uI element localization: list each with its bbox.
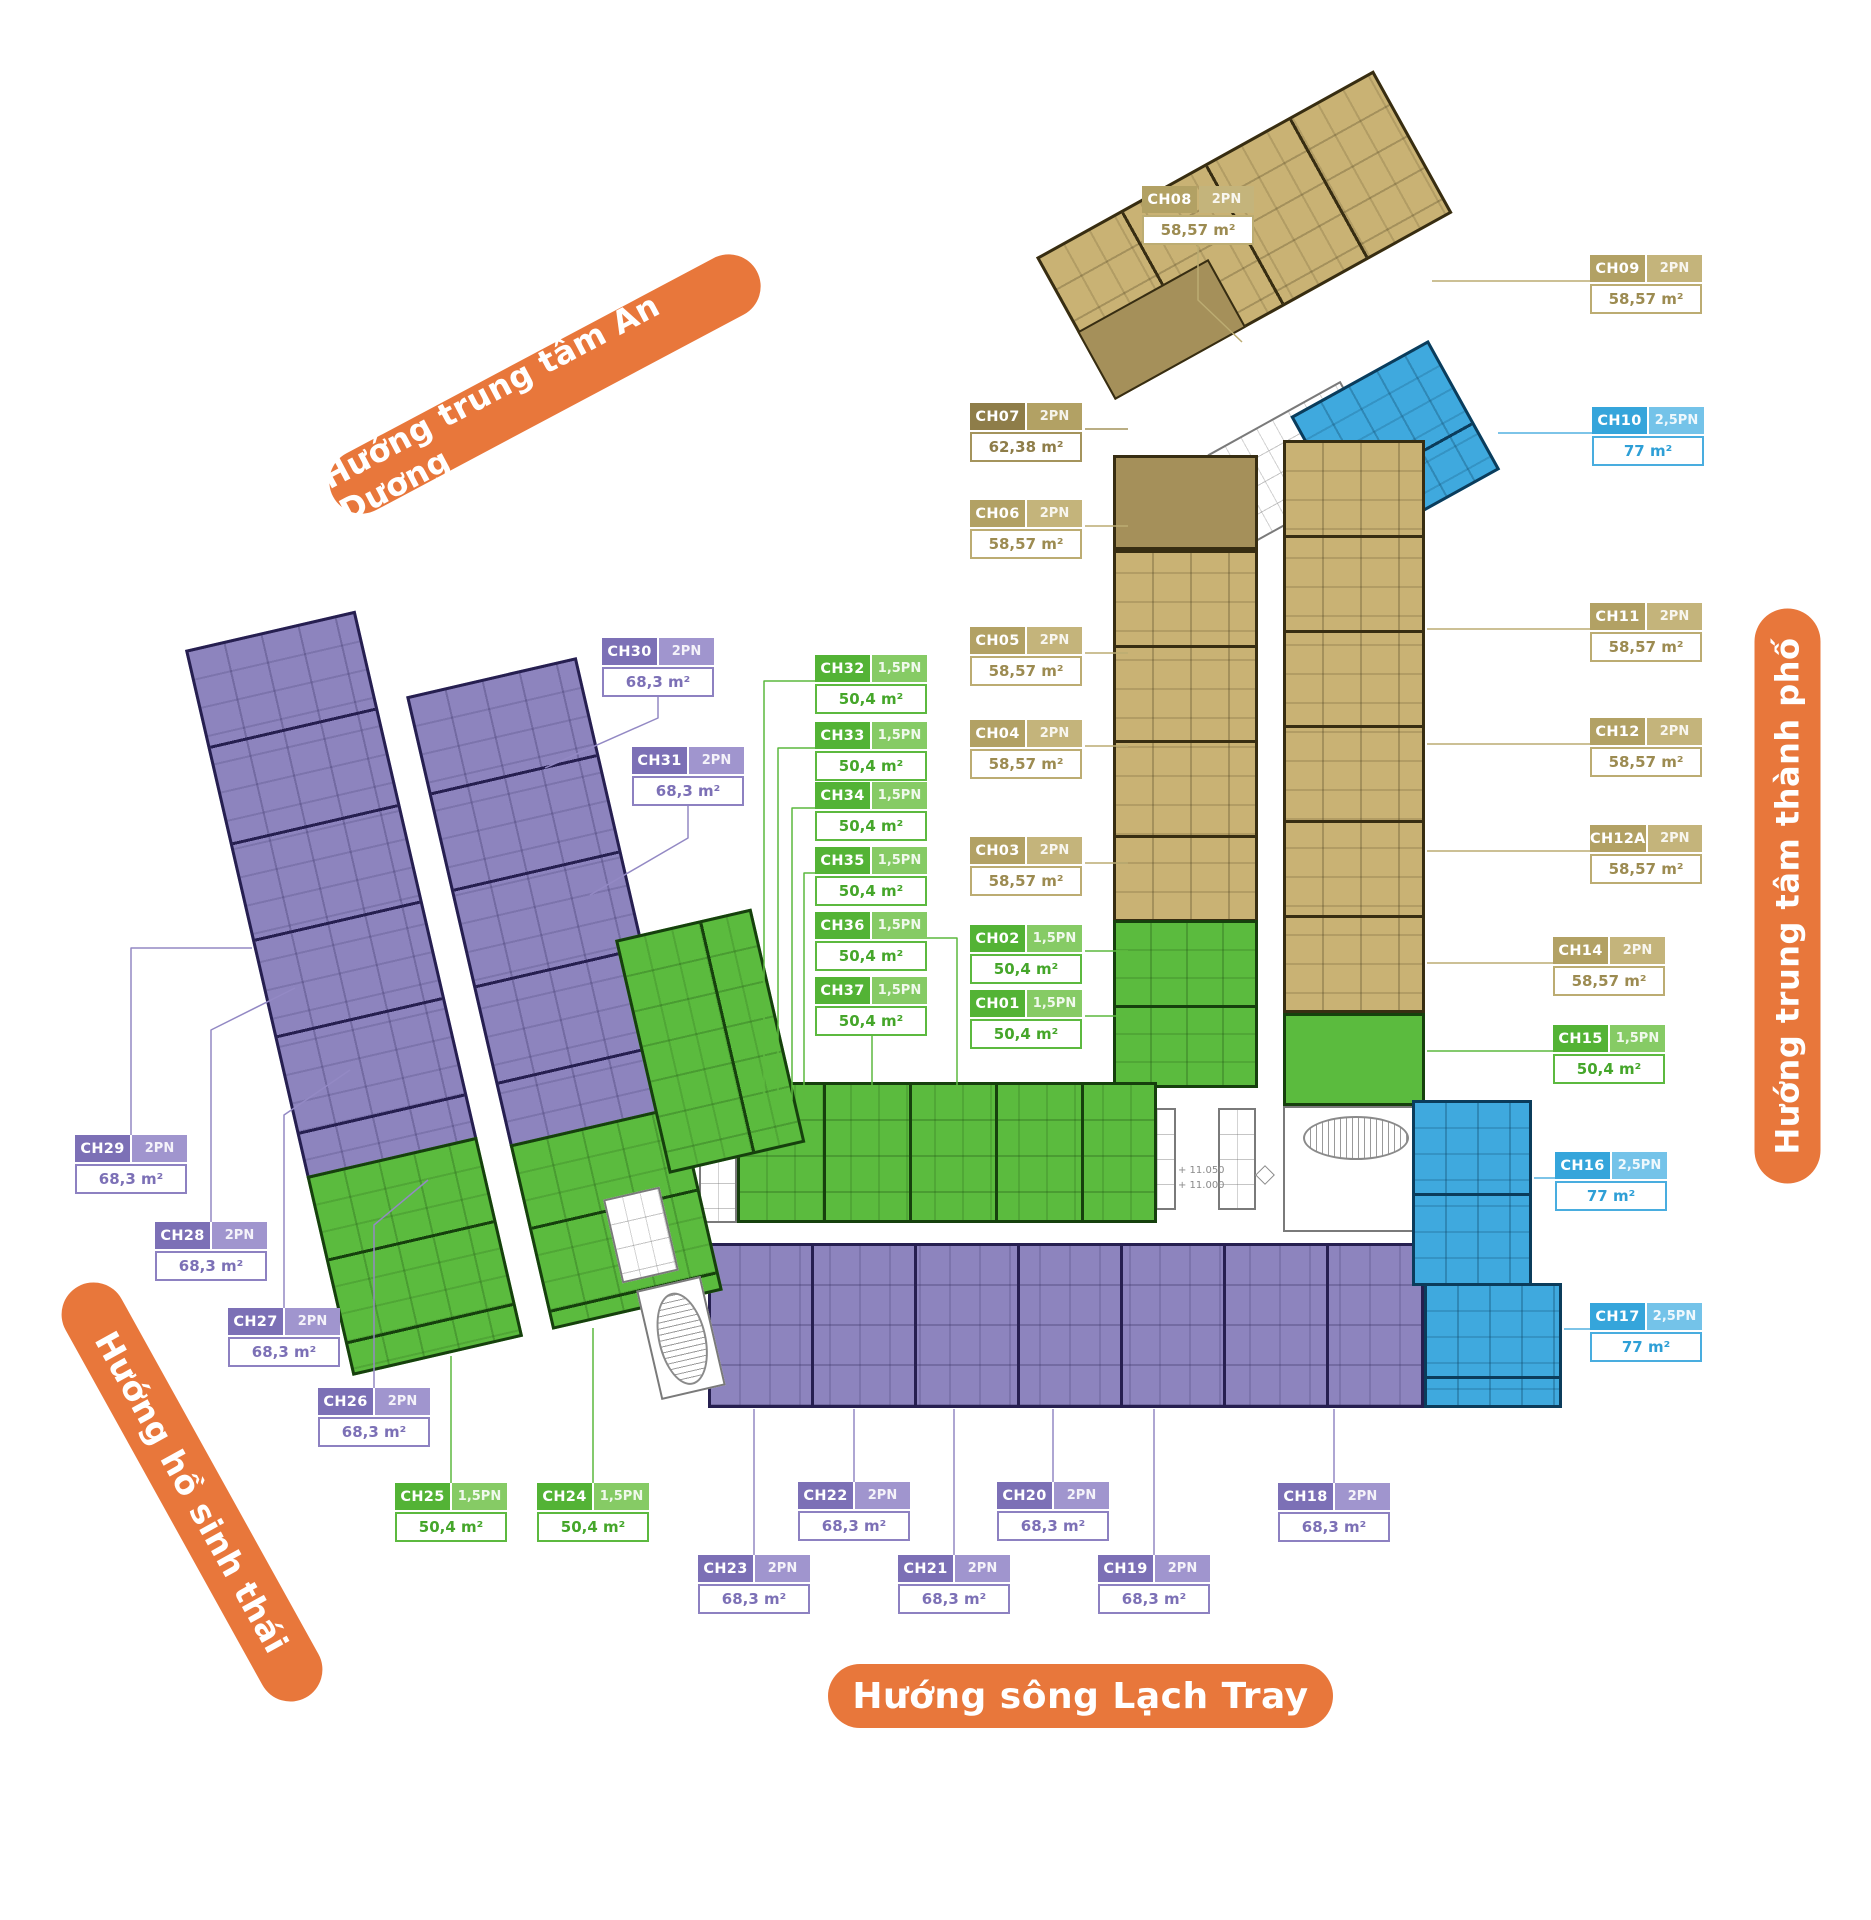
unit-label-ch02[interactable]: CH021,5PN50,4 m²	[970, 925, 1082, 984]
unit-type: 2PN	[1027, 627, 1082, 654]
unit-code: CH27	[228, 1308, 283, 1335]
unit-label-ch24[interactable]: CH241,5PN50,4 m²	[537, 1483, 649, 1542]
unit-type: 2PN	[132, 1135, 187, 1162]
unit-label-ch26[interactable]: CH262PN68,3 m²	[318, 1388, 430, 1447]
unit-label-ch20[interactable]: CH202PN68,3 m²	[997, 1482, 1109, 1541]
unit-code: CH18	[1278, 1483, 1333, 1510]
unit-label-ch14[interactable]: CH142PN58,57 m²	[1553, 937, 1665, 996]
unit-area: 58,57 m²	[970, 749, 1082, 779]
unit-label-ch01[interactable]: CH011,5PN50,4 m²	[970, 990, 1082, 1049]
unit-code: CH04	[970, 720, 1025, 747]
unit-area: 77 m²	[1555, 1181, 1667, 1211]
unit-area: 68,3 m²	[602, 667, 714, 697]
unit-type: 2PN	[375, 1388, 430, 1415]
unit-code: CH15	[1553, 1025, 1608, 1052]
unit-label-ch34[interactable]: CH341,5PN50,4 m²	[815, 782, 927, 841]
unit-type: 2PN	[1027, 837, 1082, 864]
unit-area: 58,57 m²	[970, 529, 1082, 559]
unit-type: 2PN	[212, 1222, 267, 1249]
unit-code: CH12	[1590, 718, 1645, 745]
unit-type: 1,5PN	[872, 977, 927, 1004]
unit-type: 2PN	[285, 1308, 340, 1335]
unit-area: 58,57 m²	[1142, 215, 1254, 245]
unit-type: 2PN	[1027, 500, 1082, 527]
leader-ch27	[284, 1070, 350, 1308]
banner-lach-tray: Hướng sông Lạch Tray	[828, 1664, 1333, 1728]
unit-area: 68,3 m²	[798, 1511, 910, 1541]
unit-type: 2PN	[755, 1555, 810, 1582]
unit-area: 50,4 m²	[815, 941, 927, 971]
unit-type: 2PN	[1610, 937, 1665, 964]
unit-type: 1,5PN	[1027, 925, 1082, 952]
unit-label-ch21[interactable]: CH212PN68,3 m²	[898, 1555, 1010, 1614]
unit-code: CH35	[815, 847, 870, 874]
unit-label-ch15[interactable]: CH151,5PN50,4 m²	[1553, 1025, 1665, 1084]
unit-area: 58,57 m²	[1590, 284, 1702, 314]
unit-type: 1,5PN	[1027, 990, 1082, 1017]
unit-type: 2PN	[1155, 1555, 1210, 1582]
unit-area: 58,57 m²	[970, 866, 1082, 896]
unit-type: 1,5PN	[872, 847, 927, 874]
unit-type: 2,5PN	[1612, 1152, 1667, 1179]
unit-area: 50,4 m²	[395, 1512, 507, 1542]
unit-label-ch22[interactable]: CH222PN68,3 m²	[798, 1482, 910, 1541]
unit-area: 62,38 m²	[970, 432, 1082, 462]
leader-ch36	[927, 938, 957, 1098]
unit-code: CH31	[632, 747, 687, 774]
unit-area: 50,4 m²	[815, 876, 927, 906]
leader-ch26	[374, 1180, 428, 1388]
unit-code: CH28	[155, 1222, 210, 1249]
unit-type: 2PN	[1647, 718, 1702, 745]
unit-area: 58,57 m²	[970, 656, 1082, 686]
leader-ch31	[590, 801, 688, 895]
leader-ch08	[1198, 241, 1242, 342]
leader-ch28	[211, 988, 295, 1222]
unit-label-ch03[interactable]: CH032PN58,57 m²	[970, 837, 1082, 896]
unit-label-ch06[interactable]: CH062PN58,57 m²	[970, 500, 1082, 559]
unit-code: CH29	[75, 1135, 130, 1162]
unit-area: 50,4 m²	[970, 1019, 1082, 1049]
unit-type: 1,5PN	[872, 722, 927, 749]
unit-label-ch18[interactable]: CH182PN68,3 m²	[1278, 1483, 1390, 1542]
unit-label-ch07[interactable]: CH072PN62,38 m²	[970, 403, 1082, 462]
unit-type: 2,5PN	[1647, 1303, 1702, 1330]
unit-label-ch35[interactable]: CH351,5PN50,4 m²	[815, 847, 927, 906]
unit-code: CH24	[537, 1483, 592, 1510]
unit-code: CH07	[970, 403, 1025, 430]
unit-label-ch36[interactable]: CH361,5PN50,4 m²	[815, 912, 927, 971]
unit-label-ch17[interactable]: CH172,5PN77 m²	[1590, 1303, 1702, 1362]
leader-ch33	[778, 748, 815, 1100]
unit-label-ch12[interactable]: CH122PN58,57 m²	[1590, 718, 1702, 777]
unit-code: CH23	[698, 1555, 753, 1582]
unit-type: 1,5PN	[1610, 1025, 1665, 1052]
unit-type: 1,5PN	[872, 655, 927, 682]
unit-code: CH08	[1142, 186, 1197, 213]
unit-area: 58,57 m²	[1590, 632, 1702, 662]
unit-type: 2PN	[855, 1482, 910, 1509]
unit-area: 68,3 m²	[1098, 1584, 1210, 1614]
unit-label-ch09[interactable]: CH092PN58,57 m²	[1590, 255, 1702, 314]
unit-label-ch12a[interactable]: CH12A2PN58,57 m²	[1590, 825, 1702, 884]
unit-label-ch05[interactable]: CH052PN58,57 m²	[970, 627, 1082, 686]
unit-area: 68,3 m²	[698, 1584, 810, 1614]
unit-code: CH14	[1553, 937, 1608, 964]
unit-type: 2,5PN	[1649, 407, 1704, 434]
unit-area: 58,57 m²	[1553, 966, 1665, 996]
unit-code: CH32	[815, 655, 870, 682]
unit-code: CH17	[1590, 1303, 1645, 1330]
unit-code: CH05	[970, 627, 1025, 654]
unit-type: 2PN	[1335, 1483, 1390, 1510]
unit-label-ch08[interactable]: CH082PN58,57 m²	[1142, 186, 1254, 245]
unit-label-ch27[interactable]: CH272PN68,3 m²	[228, 1308, 340, 1367]
unit-label-ch31[interactable]: CH312PN68,3 m²	[632, 747, 744, 806]
unit-area: 77 m²	[1592, 436, 1704, 466]
unit-code: CH12A	[1590, 825, 1646, 852]
unit-code: CH20	[997, 1482, 1052, 1509]
unit-code: CH22	[798, 1482, 853, 1509]
unit-code: CH37	[815, 977, 870, 1004]
unit-area: 50,4 m²	[970, 954, 1082, 984]
unit-label-ch11[interactable]: CH112PN58,57 m²	[1590, 603, 1702, 662]
unit-area: 68,3 m²	[632, 776, 744, 806]
unit-type: 1,5PN	[872, 912, 927, 939]
unit-code: CH03	[970, 837, 1025, 864]
unit-type: 1,5PN	[452, 1483, 507, 1510]
unit-label-ch04[interactable]: CH042PN58,57 m²	[970, 720, 1082, 779]
unit-label-ch30[interactable]: CH302PN68,3 m²	[602, 638, 714, 697]
unit-label-ch37[interactable]: CH371,5PN50,4 m²	[815, 977, 927, 1036]
unit-type: 2PN	[1054, 1482, 1109, 1509]
unit-area: 58,57 m²	[1590, 747, 1702, 777]
unit-type: 1,5PN	[594, 1483, 649, 1510]
unit-code: CH25	[395, 1483, 450, 1510]
unit-area: 50,4 m²	[1553, 1054, 1665, 1084]
unit-type: 2PN	[659, 638, 714, 665]
unit-area: 68,3 m²	[1278, 1512, 1390, 1542]
unit-code: CH26	[318, 1388, 373, 1415]
unit-code: CH21	[898, 1555, 953, 1582]
unit-label-ch33[interactable]: CH331,5PN50,4 m²	[815, 722, 927, 781]
unit-code: CH11	[1590, 603, 1645, 630]
unit-code: CH06	[970, 500, 1025, 527]
unit-label-ch16[interactable]: CH162,5PN77 m²	[1555, 1152, 1667, 1211]
banner-thanh-pho: Hướng trung tâm thành phố	[1755, 609, 1821, 1184]
unit-area: 68,3 m²	[318, 1417, 430, 1447]
leader-ch32	[764, 681, 815, 1100]
unit-type: 2PN	[1027, 403, 1082, 430]
unit-type: 2PN	[1647, 603, 1702, 630]
unit-label-ch19[interactable]: CH192PN68,3 m²	[1098, 1555, 1210, 1614]
unit-label-ch28[interactable]: CH282PN68,3 m²	[155, 1222, 267, 1281]
unit-label-ch10[interactable]: CH102,5PN77 m²	[1592, 407, 1704, 466]
unit-area: 68,3 m²	[155, 1251, 267, 1281]
unit-type: 2PN	[1648, 825, 1702, 852]
unit-label-ch32[interactable]: CH321,5PN50,4 m²	[815, 655, 927, 714]
unit-type: 1,5PN	[872, 782, 927, 809]
unit-code: CH36	[815, 912, 870, 939]
unit-type: 2PN	[1027, 720, 1082, 747]
unit-code: CH09	[1590, 255, 1645, 282]
unit-code: CH19	[1098, 1555, 1153, 1582]
unit-area: 50,4 m²	[537, 1512, 649, 1542]
unit-code: CH02	[970, 925, 1025, 952]
unit-type: 2PN	[955, 1555, 1010, 1582]
unit-area: 50,4 m²	[815, 684, 927, 714]
leader-ch29	[131, 948, 252, 1135]
unit-label-ch23[interactable]: CH232PN68,3 m²	[698, 1555, 810, 1614]
unit-type: 2PN	[1647, 255, 1702, 282]
floor-plan: + 11.050 + 11.000 CH011,5PN50,4 m²CH021,…	[0, 0, 1871, 1920]
unit-code: CH34	[815, 782, 870, 809]
unit-type: 2PN	[689, 747, 744, 774]
unit-code: CH33	[815, 722, 870, 749]
leader-ch35	[804, 873, 815, 1100]
unit-code: CH30	[602, 638, 657, 665]
unit-area: 50,4 m²	[815, 1006, 927, 1036]
unit-type: 2PN	[1199, 186, 1254, 213]
unit-area: 50,4 m²	[815, 811, 927, 841]
unit-area: 50,4 m²	[815, 751, 927, 781]
unit-area: 77 m²	[1590, 1332, 1702, 1362]
unit-area: 68,3 m²	[228, 1337, 340, 1367]
unit-code: CH10	[1592, 407, 1647, 434]
unit-area: 68,3 m²	[898, 1584, 1010, 1614]
unit-area: 58,57 m²	[1590, 854, 1702, 884]
unit-label-ch25[interactable]: CH251,5PN50,4 m²	[395, 1483, 507, 1542]
unit-code: CH01	[970, 990, 1025, 1017]
unit-area: 68,3 m²	[75, 1164, 187, 1194]
unit-label-ch29[interactable]: CH292PN68,3 m²	[75, 1135, 187, 1194]
unit-code: CH16	[1555, 1152, 1610, 1179]
unit-area: 68,3 m²	[997, 1511, 1109, 1541]
